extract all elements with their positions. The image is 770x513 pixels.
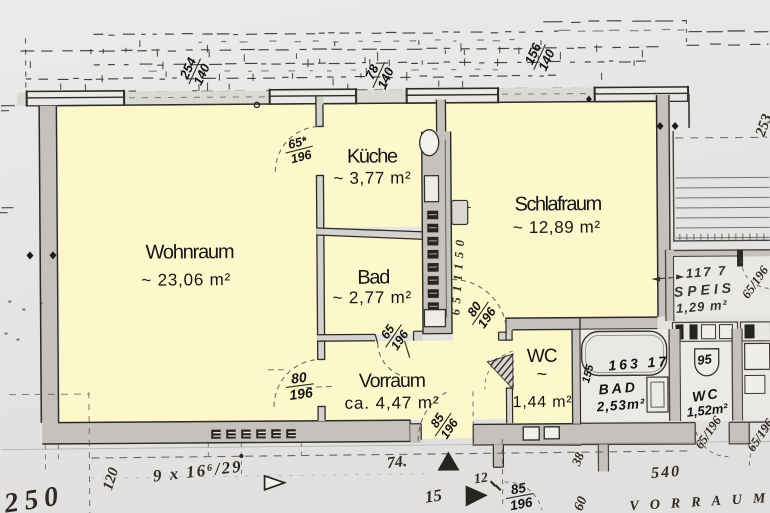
svg-text:80: 80: [290, 369, 308, 387]
svg-text:95: 95: [696, 351, 713, 368]
svg-text:ca. 4,47 m²: ca. 4,47 m²: [344, 393, 439, 413]
svg-text:117 7: 117 7: [685, 263, 728, 281]
svg-text:540: 540: [651, 463, 682, 482]
svg-text:15: 15: [424, 485, 444, 506]
svg-text:Wohnraum: Wohnraum: [145, 241, 234, 264]
svg-text:Vorraum: Vorraum: [359, 370, 425, 392]
svg-text:~: ~: [536, 364, 547, 384]
svg-text:196: 196: [288, 384, 313, 403]
svg-text:~ 2,77 m²: ~ 2,77 m²: [332, 288, 412, 308]
svg-text:~ 23,06 m²: ~ 23,06 m²: [141, 270, 231, 290]
svg-text:12: 12: [473, 470, 489, 487]
svg-text:~ 12,89 m²: ~ 12,89 m²: [513, 217, 601, 237]
svg-text:1,44 m²: 1,44 m²: [513, 394, 573, 411]
svg-text:Küche: Küche: [347, 145, 398, 167]
svg-text:BAD: BAD: [598, 379, 638, 398]
svg-text:74.: 74.: [386, 453, 408, 472]
svg-text:~ 3,77 m²: ~ 3,77 m²: [334, 168, 412, 188]
svg-text:Bad: Bad: [357, 266, 389, 288]
svg-text:Schlafraum: Schlafraum: [514, 193, 601, 216]
